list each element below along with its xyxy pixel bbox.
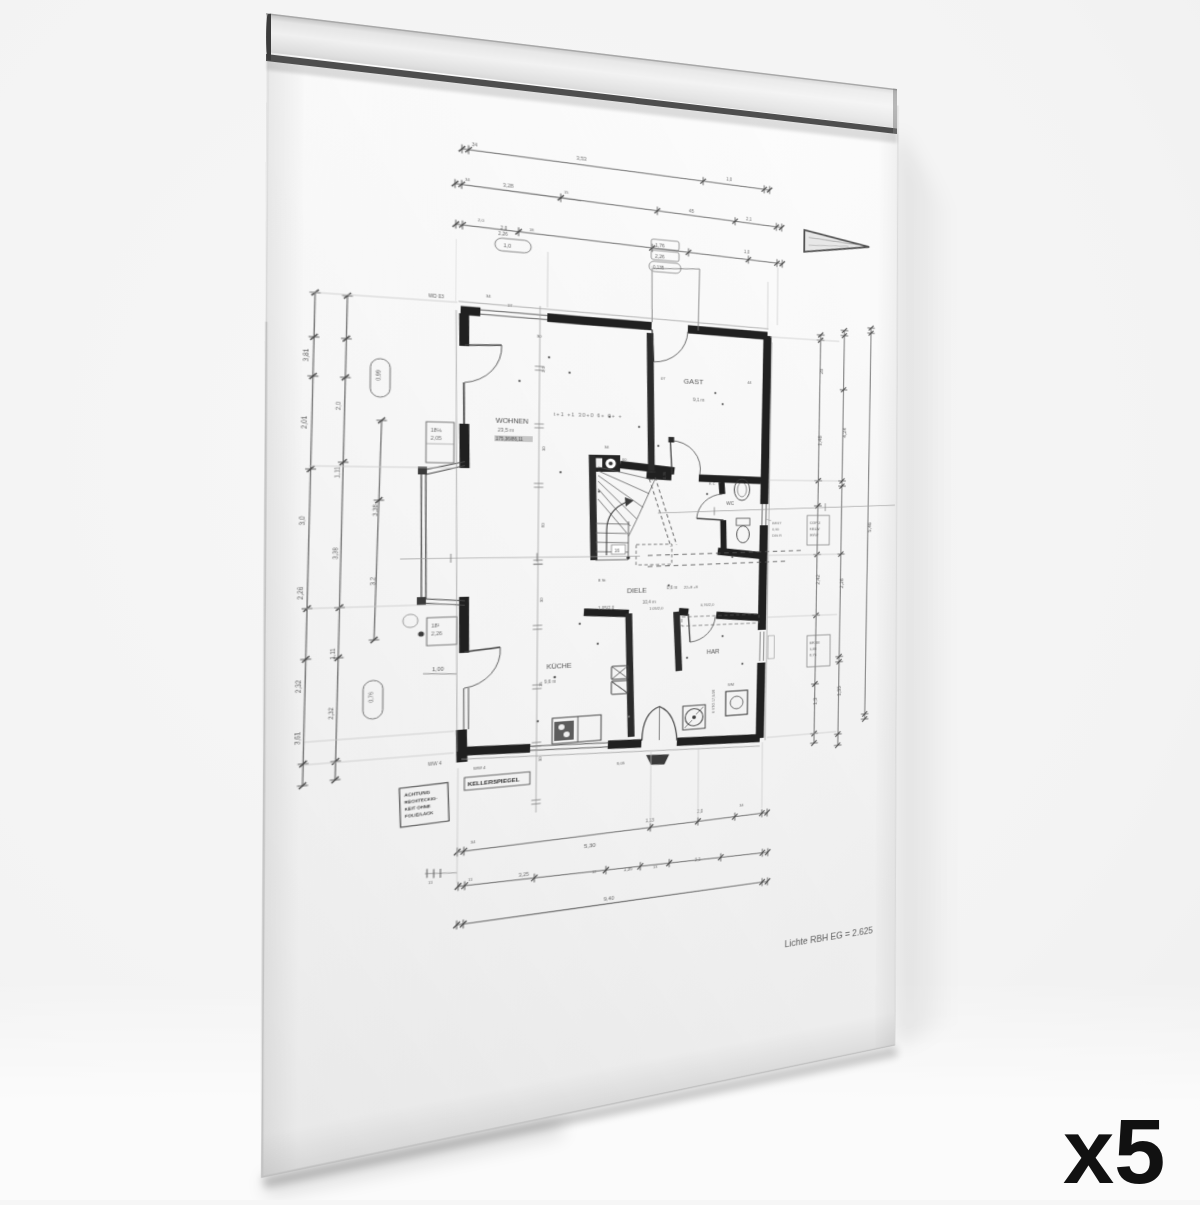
svg-text:2,1: 2,1 [695,858,701,863]
svg-text:3,61: 3,61 [293,731,302,745]
svg-text:0,90: 0,90 [772,528,779,532]
svg-text:BR 88: BR 88 [810,641,820,646]
svg-text:13: 13 [653,865,658,870]
svg-text:3,38: 3,38 [371,504,380,516]
svg-text:10,4 m: 10,4 m [643,600,657,605]
svg-text:2,32: 2,32 [326,707,335,720]
svg-text:30: 30 [542,446,547,451]
svg-text:2,26: 2,26 [838,578,844,588]
svg-text:9,6 m: 9,6 m [544,680,556,685]
svg-text:0,6 m: 0,6 m [667,586,678,591]
svg-text:30: 30 [538,756,543,761]
svg-text:HAR: HAR [707,648,720,655]
svg-text:2,26: 2,26 [498,232,507,238]
svg-text:1,05/2,0: 1,05/2,0 [598,606,614,611]
svg-text:18: 18 [529,228,534,233]
svg-text:3,38: 3,38 [331,547,340,559]
svg-text:18℅: 18℅ [431,428,442,434]
svg-text:11: 11 [468,877,473,882]
svg-text:2,01: 2,01 [300,415,309,429]
svg-text:1,00: 1,00 [432,667,444,673]
svg-text:3,81: 3,81 [301,348,310,362]
svg-text:2,0: 2,0 [478,218,485,223]
svg-text:0,76: 0,76 [809,653,816,658]
svg-text:1,76: 1,76 [655,243,665,249]
svg-text:90: 90 [541,523,546,528]
svg-text:17: 17 [507,303,512,308]
svg-text:2,0: 2,0 [334,401,343,410]
svg-text:5,46: 5,46 [866,522,872,532]
svg-text:34: 34 [465,177,470,182]
svg-text:WOHNEN: WOHNEN [496,416,529,425]
svg-text:45: 45 [689,209,695,215]
svg-text:6 STG 17,5/28: 6 STG 17,5/28 [712,689,717,713]
svg-text:1,11: 1,11 [328,648,337,660]
svg-text:4,24: 4,24 [841,428,847,438]
svg-text:8 St: 8 St [598,578,606,583]
svg-text:3,0: 3,0 [298,516,307,526]
svg-text:11: 11 [428,880,433,885]
svg-text:34: 34 [739,803,743,808]
svg-text:44: 44 [747,381,751,386]
svg-text:3,28: 3,28 [503,183,514,190]
svg-text:3,53: 3,53 [576,156,586,163]
svg-text:22+8 +8: 22+8 +8 [684,585,698,590]
svg-text:175,36/86,11: 175,36/86,11 [495,437,523,442]
svg-text:GAST: GAST [684,377,704,385]
svg-text:0,76/2,0: 0,76/2,0 [701,603,715,608]
svg-text:2,05: 2,05 [431,436,442,442]
svg-text:12: 12 [592,870,597,875]
svg-text:07: 07 [661,377,666,382]
svg-text:WM: WM [728,683,735,688]
svg-text:60: 60 [622,458,627,463]
svg-text:WD 03: WD 03 [428,294,443,300]
svg-text:KELW: KELW [810,527,820,531]
svg-text:3,2: 3,2 [368,577,377,586]
svg-text:30/17: 30/17 [810,533,819,537]
svg-text:1,0: 1,0 [726,177,732,182]
svg-text:DIN R: DIN R [772,534,782,538]
svg-text:16: 16 [614,549,619,554]
svg-text:0,99: 0,99 [375,370,382,381]
svg-text:15: 15 [539,682,544,687]
svg-text:1 05/2,0: 1 05/2,0 [649,606,663,611]
svg-text:5,30: 5,30 [584,841,596,849]
svg-text:WC: WC [726,501,734,506]
svg-text:K C: K C [709,482,716,487]
svg-text:1,35: 1,35 [836,686,842,696]
svg-text:2,26: 2,26 [431,631,442,637]
svg-text:DIELE: DIELE [627,586,647,594]
svg-text:18²: 18² [431,623,439,629]
svg-text:1,88: 1,88 [810,647,817,652]
svg-text:1,11: 1,11 [333,467,342,479]
svg-text:34: 34 [486,294,491,299]
svg-text:COP 2: COP 2 [810,521,821,525]
svg-text:BRST: BRST [772,521,781,525]
svg-text:9,05: 9,05 [617,761,625,766]
svg-text:9,1 m: 9,1 m [693,397,705,403]
svg-text:0,135: 0,135 [653,266,664,271]
svg-text:2,0: 2,0 [500,226,507,231]
svg-text:30: 30 [539,598,544,603]
svg-text:1,0: 1,0 [744,250,750,255]
svg-text:0,76: 0,76 [368,691,375,702]
svg-text:2,0: 2,0 [541,367,546,373]
svg-text:1,3: 1,3 [812,697,818,705]
svg-text:28: 28 [819,369,824,375]
svg-text:34: 34 [470,840,475,845]
svg-text:15: 15 [564,190,569,195]
svg-text:KÜCHE: KÜCHE [546,661,572,670]
svg-text:34: 34 [604,445,609,450]
svg-text:2,26: 2,26 [655,254,665,260]
svg-text:0,76: 0,76 [663,472,668,479]
svg-text:34: 34 [472,143,478,148]
svg-text:30: 30 [537,334,542,339]
svg-text:2,32: 2,32 [294,680,303,694]
svg-text:2,42: 2,42 [815,575,821,585]
svg-text:2,1: 2,1 [746,217,752,222]
svg-text:23,5 m: 23,5 m [498,428,514,434]
svg-text:1,48: 1,48 [817,436,823,446]
svg-text:1,13: 1,13 [646,818,654,823]
svg-text:1,0: 1,0 [504,244,512,250]
svg-text:2,26: 2,26 [296,586,305,600]
